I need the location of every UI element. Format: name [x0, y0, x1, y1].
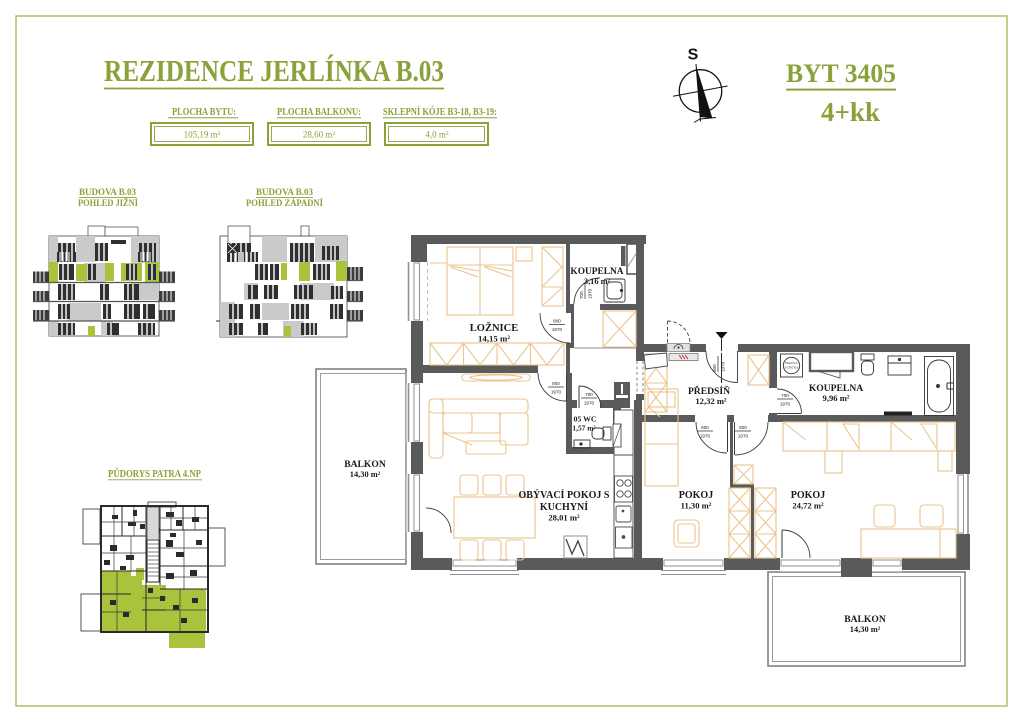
svg-text:BALKON: BALKON [844, 614, 886, 625]
svg-text:KUCHYNÍ: KUCHYNÍ [540, 501, 588, 513]
svg-text:KOUPELNA: KOUPELNA [570, 267, 623, 277]
svg-text:28,60 m²: 28,60 m² [303, 130, 336, 140]
svg-text:LOŽNICE: LOŽNICE [470, 322, 518, 334]
svg-text:9,96 m²: 9,96 m² [823, 393, 850, 403]
svg-text:12,32 m²: 12,32 m² [695, 396, 727, 406]
svg-text:POHLED JIŽNÍ: POHLED JIŽNÍ [78, 197, 138, 209]
svg-text:4+kk: 4+kk [821, 97, 880, 127]
svg-text:POKOJ: POKOJ [679, 490, 713, 501]
svg-text:700: 700 [579, 291, 584, 299]
svg-text:28,01 m²: 28,01 m² [548, 513, 580, 523]
svg-text:POHLED ZÁPADNÍ: POHLED ZÁPADNÍ [246, 197, 323, 209]
svg-text:14,30 m²: 14,30 m² [850, 625, 881, 634]
svg-text:700: 700 [781, 393, 789, 398]
svg-text:SKLEPNÍ KÓJE B3-18, B3-19:: SKLEPNÍ KÓJE B3-18, B3-19: [383, 106, 497, 118]
svg-text:REZIDENCE JERLÍNKA B.03: REZIDENCE JERLÍNKA B.03 [104, 53, 444, 88]
svg-text:1970: 1970 [552, 327, 563, 332]
svg-text:1970: 1970 [738, 434, 749, 439]
svg-text:800: 800 [701, 425, 709, 430]
svg-text:OBÝVACÍ POKOJ S: OBÝVACÍ POKOJ S [519, 489, 610, 501]
svg-text:BUDOVA B.03: BUDOVA B.03 [256, 188, 313, 198]
svg-text:PLOCHA BALKONU:: PLOCHA BALKONU: [277, 107, 361, 118]
svg-text:SUŠIČKA: SUŠIČKA [785, 365, 799, 370]
svg-text:700: 700 [585, 392, 593, 397]
svg-text:800: 800 [553, 319, 561, 324]
svg-text:105,19 m²: 105,19 m² [184, 130, 221, 140]
svg-text:4,0 m²: 4,0 m² [425, 130, 449, 140]
svg-text:800: 800 [552, 381, 560, 386]
svg-text:3,16 m²: 3,16 m² [584, 277, 611, 286]
svg-text:BALKON: BALKON [344, 459, 386, 470]
svg-text:PLOCHA BYTU:: PLOCHA BYTU: [172, 107, 236, 118]
svg-text:1970: 1970 [780, 402, 791, 407]
svg-text:POKOJ: POKOJ [791, 490, 825, 501]
svg-text:S: S [688, 47, 699, 64]
svg-text:05 WC: 05 WC [573, 415, 596, 424]
svg-text:1970: 1970 [721, 361, 726, 372]
svg-text:800: 800 [739, 425, 747, 430]
svg-text:1970: 1970 [551, 390, 562, 395]
svg-text:BUDOVA B.03: BUDOVA B.03 [79, 188, 136, 198]
svg-text:PRAČKA: PRAČKA [785, 360, 799, 365]
svg-text:BYT 3405: BYT 3405 [786, 59, 896, 88]
svg-text:1,57 m²: 1,57 m² [572, 424, 596, 433]
svg-text:1970: 1970 [584, 401, 595, 406]
svg-text:PŮDORYS PATRA 4.NP: PŮDORYS PATRA 4.NP [108, 467, 201, 480]
svg-text:14,30 m²: 14,30 m² [350, 470, 381, 479]
svg-text:14,15 m²: 14,15 m² [478, 334, 510, 344]
svg-text:1970: 1970 [588, 288, 593, 299]
svg-text:11,30 m²: 11,30 m² [681, 501, 712, 511]
svg-text:24,72 m²: 24,72 m² [792, 501, 824, 511]
svg-text:1970: 1970 [700, 434, 711, 439]
